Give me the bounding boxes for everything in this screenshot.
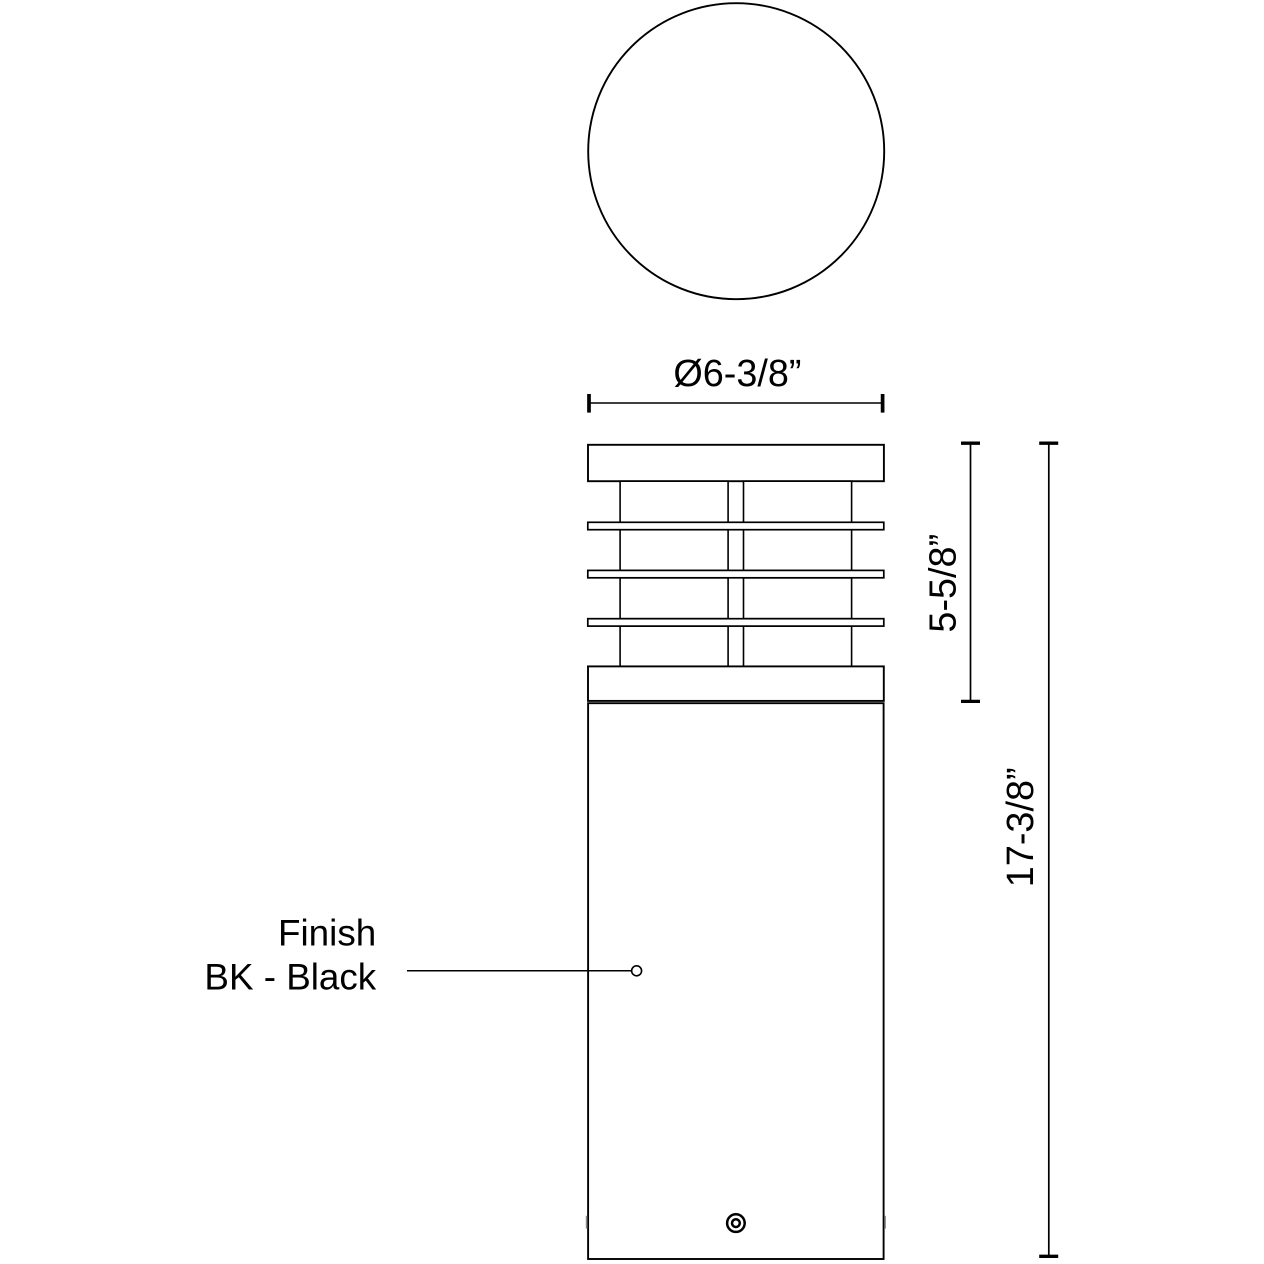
svg-text:5-5/8”: 5-5/8”	[923, 534, 965, 633]
svg-text:Ø6-3/8”: Ø6-3/8”	[673, 353, 801, 395]
svg-text:Finish: Finish	[278, 913, 376, 954]
svg-text:17-3/8”: 17-3/8”	[1000, 767, 1042, 887]
svg-text:BK - Black: BK - Black	[204, 956, 376, 997]
